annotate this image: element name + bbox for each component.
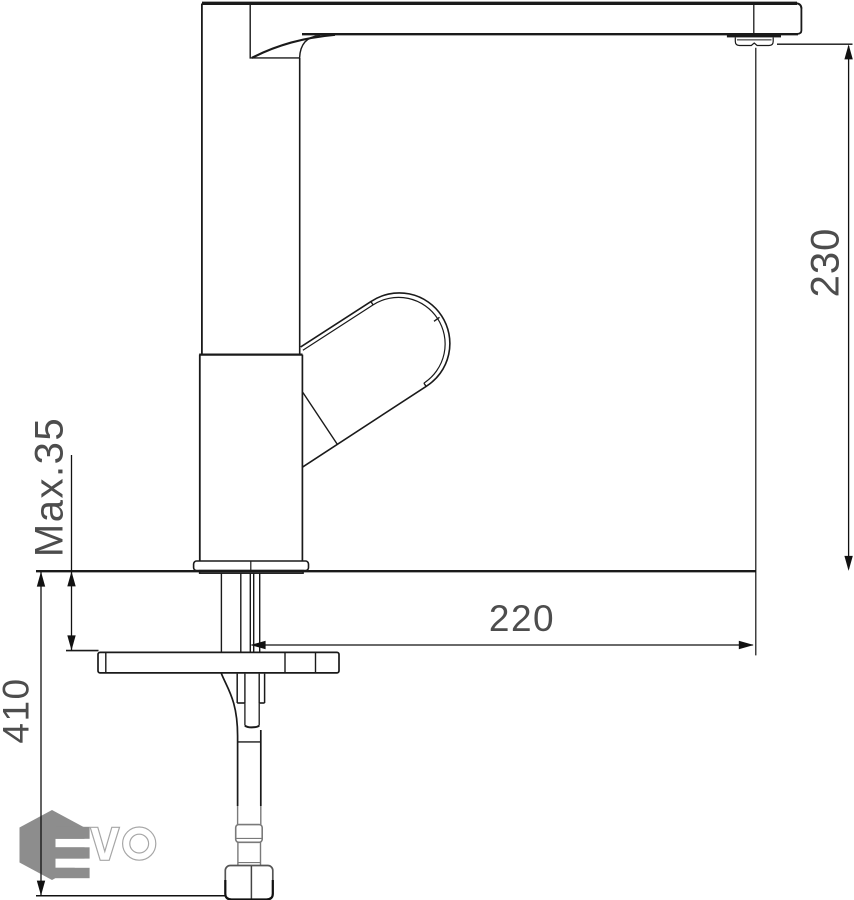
svg-text:220: 220 (489, 598, 555, 639)
svg-text:410: 410 (0, 677, 36, 743)
svg-text:Max.35: Max.35 (28, 417, 72, 557)
svg-text:230: 230 (804, 228, 848, 298)
